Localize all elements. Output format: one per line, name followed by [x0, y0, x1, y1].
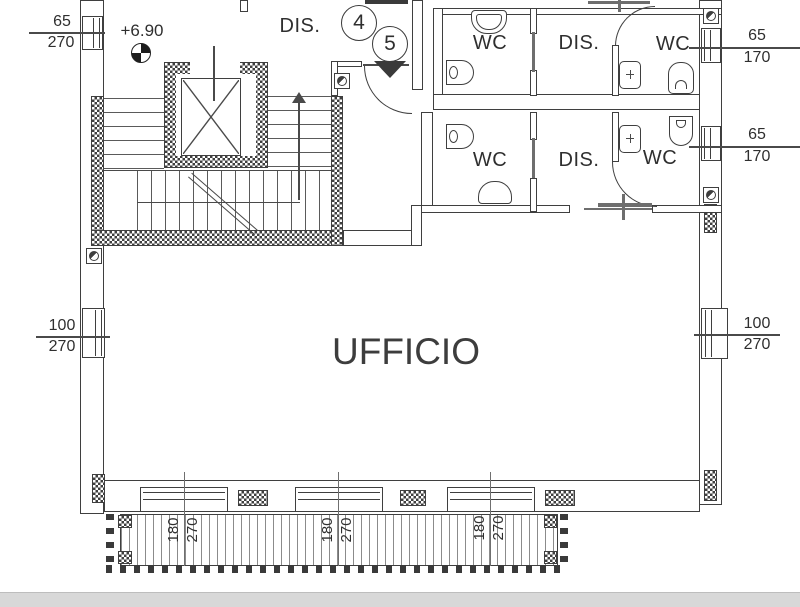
stair-right-wall-hatched — [331, 96, 343, 246]
sliding-door-bottom-leaf — [598, 203, 652, 207]
junction-symbol-icon — [703, 8, 719, 24]
scan-edge-strip — [0, 593, 800, 607]
partition-stub — [530, 70, 537, 96]
section-marker-5: 5 — [372, 26, 408, 62]
wc-middle-wall — [433, 94, 700, 110]
pocket-door-leaf — [532, 138, 535, 178]
glazing-line — [704, 128, 711, 159]
washbasin-cross — [630, 70, 631, 79]
dimension-value: 180 — [166, 506, 182, 554]
wc-bottom-wall-right — [652, 205, 722, 213]
elevator-center-line — [213, 46, 215, 101]
sliding-door-bottom-stem — [622, 194, 625, 220]
balcony-corner-block — [544, 551, 557, 564]
wc1-label: WC — [468, 32, 512, 55]
section-marker-4: 4 — [341, 5, 377, 41]
junction-symbol-icon — [334, 73, 350, 89]
hatched-pier — [238, 490, 268, 506]
toilet-icon — [668, 62, 694, 94]
section-arrow-up — [365, 0, 408, 4]
dimension-value: 180 — [472, 504, 488, 552]
elevator-door-gap — [190, 62, 240, 75]
toilet-flush-icon — [449, 130, 458, 143]
wc-row1-left-wall — [433, 8, 443, 96]
glazing-line — [704, 30, 711, 61]
dimension-value: 65 — [736, 27, 778, 45]
balcony-corner-block — [118, 551, 132, 564]
floor-plan: UFFICIO DIS. WC DIS. WC WC DIS. WC +6.90… — [0, 0, 800, 607]
junction-symbol-icon — [703, 187, 719, 203]
balcony-corner-block — [118, 515, 132, 528]
dimension-value: 100 — [40, 317, 84, 335]
wc4-label: WC — [638, 147, 682, 170]
balcony-railing-bottom — [106, 565, 568, 573]
level-marker-icon — [131, 43, 151, 63]
stair-bottom-wall-hatched — [91, 230, 343, 246]
dis1-label: DIS. — [554, 32, 604, 55]
wc-bottom-wall-left — [421, 205, 570, 213]
window-left-lower — [82, 308, 105, 358]
elevator-x-icon — [183, 80, 239, 154]
dimension-value: 170 — [734, 148, 780, 166]
dis2-label: DIS. — [554, 149, 604, 172]
pocket-door-leaf — [532, 32, 535, 72]
stair-direction-arrow-shaft — [298, 100, 300, 200]
partition-stub — [612, 45, 619, 96]
right-exterior-wall — [699, 0, 722, 505]
partition-stub — [530, 178, 537, 212]
section-marker-4-number: 4 — [353, 11, 365, 35]
partition-stub — [530, 112, 537, 140]
junction-symbol-icon — [86, 248, 102, 264]
hall-right-wall — [412, 0, 423, 90]
dimension-value: 180 — [320, 506, 336, 554]
dimension-value: 270 — [40, 338, 84, 356]
hatched-pier — [704, 470, 717, 501]
office-label: UFFICIO — [330, 331, 482, 373]
dimension-value: 270 — [38, 34, 84, 52]
balcony-railing-right — [560, 514, 568, 570]
stair-left-wall-hatched — [91, 96, 104, 246]
dimension-value: 270 — [339, 506, 355, 554]
dimension-value: 270 — [734, 336, 780, 354]
section-marker-5-number: 5 — [384, 32, 396, 56]
hatched-pier — [545, 490, 575, 506]
junction-dot-icon — [337, 76, 347, 86]
hall-label: DIS. — [272, 15, 328, 38]
sink-icon — [478, 181, 512, 204]
wall-stub-top — [240, 0, 248, 12]
junction-dot-icon — [89, 251, 99, 261]
dimension-value: 270 — [185, 506, 201, 554]
dimension-value: 170 — [734, 49, 780, 67]
sliding-door-top-stem — [618, 0, 621, 12]
dimension-value: 65 — [42, 13, 82, 31]
hatched-pier — [400, 490, 426, 506]
wc3-label: WC — [468, 149, 512, 172]
toilet-flush-icon — [449, 66, 458, 79]
wc-row2-left-wall — [421, 112, 433, 212]
glazing-line — [95, 310, 102, 356]
junction-dot-icon — [706, 11, 716, 21]
junction-dot-icon — [706, 190, 716, 200]
balcony-corner-block — [544, 515, 557, 528]
dimension-value: 65 — [736, 126, 778, 144]
window-right-middle — [701, 126, 721, 161]
balcony-railing-left — [106, 514, 114, 570]
stairs-upper-left-treads — [104, 98, 164, 170]
stairs-lower-treads — [137, 171, 331, 230]
washbasin-cross — [630, 134, 631, 143]
dimension-value: 270 — [491, 504, 507, 552]
level-label: +6.90 — [112, 21, 172, 41]
dimension-value: 100 — [734, 315, 780, 333]
window-right-upper — [701, 28, 721, 63]
partition-stub — [612, 112, 619, 162]
sliding-door-bottom-bar — [584, 208, 652, 210]
wc2-label: WC — [651, 33, 695, 56]
partition-stub — [530, 8, 537, 34]
section-arrow-down — [374, 61, 406, 78]
stair-direction-arrow-head — [292, 92, 306, 103]
toilet-seat-icon — [675, 80, 687, 89]
